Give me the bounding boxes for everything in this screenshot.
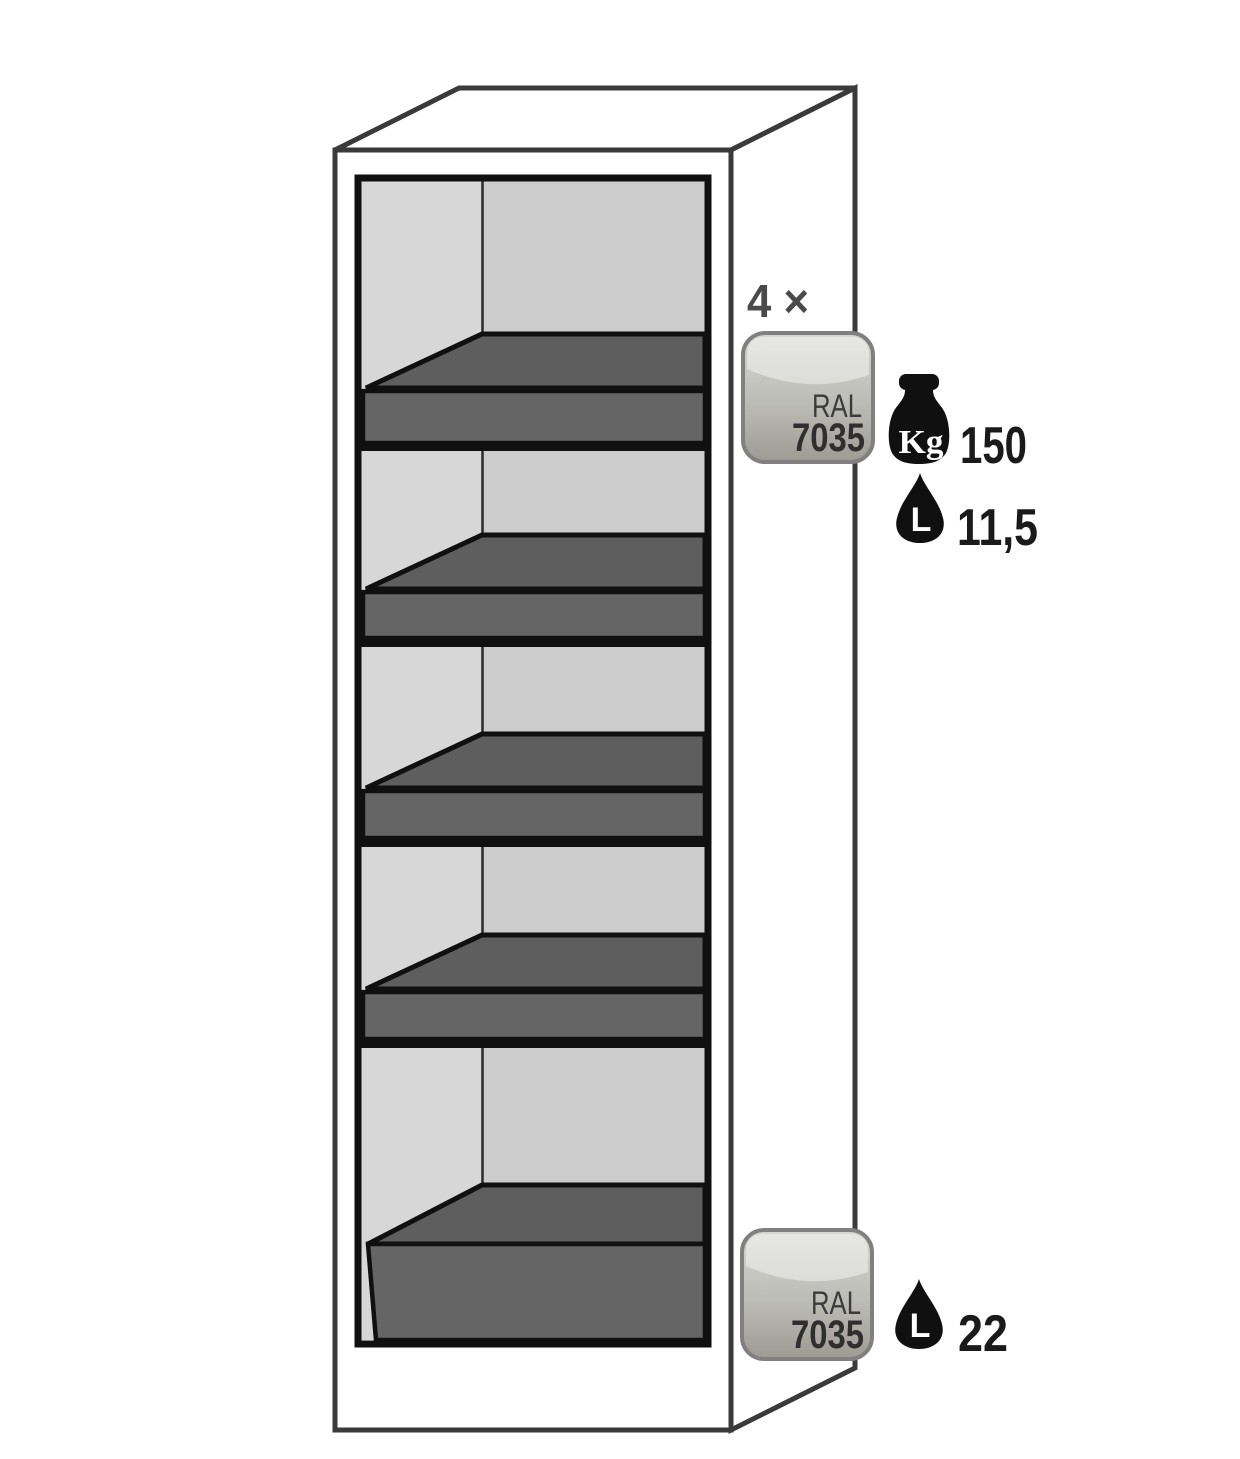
shelf-compartment-4: [355, 847, 711, 1048]
cabinet-diagram: 4 × RAL 7035 Kg 150 L 11,5 RAL 7035: [0, 0, 1240, 1459]
sump-volume-value: 22: [958, 1305, 1008, 1363]
ral-badge-bottom: RAL 7035: [742, 1230, 872, 1359]
shelf-divider: [355, 1039, 711, 1048]
sump-compartment: [361, 1048, 705, 1340]
ral-code: 7035: [792, 416, 865, 460]
shelf-count-label: 4 ×: [747, 275, 809, 327]
shelf-compartment-2: [355, 451, 711, 647]
shelf-compartment-3: [355, 647, 711, 847]
liter-unit-label-top: L: [911, 501, 932, 539]
shelf-tray-front: [363, 992, 705, 1039]
sump-annotation: RAL 7035 L 22: [742, 1230, 1008, 1363]
ral-code: 7035: [791, 1313, 864, 1357]
load-capacity: Kg 150: [889, 374, 1027, 475]
cabinet-interior: [355, 178, 711, 1344]
shelf-tray-front: [363, 592, 705, 638]
sump-volume: L 22: [895, 1279, 1008, 1363]
load-capacity-value: 150: [960, 417, 1027, 475]
liter-unit-label-bottom: L: [910, 1307, 931, 1345]
shelf-compartment-1: [355, 181, 711, 451]
shelf-divider: [355, 838, 711, 847]
shelf-tray-front: [363, 391, 705, 443]
shelf-divider: [355, 638, 711, 647]
shelf-volume: L 11,5: [896, 473, 1038, 557]
shelf-tray-front: [363, 791, 705, 838]
kg-unit-label: Kg: [899, 424, 944, 461]
shelf-divider: [355, 443, 711, 451]
ral-badge-top: RAL 7035: [743, 333, 873, 462]
sump-tray-front: [368, 1244, 705, 1340]
shelf-volume-value: 11,5: [957, 499, 1038, 557]
diagram-canvas: 4 × RAL 7035 Kg 150 L 11,5 RAL 7035: [0, 0, 1240, 1459]
weight-handle: [899, 374, 939, 390]
